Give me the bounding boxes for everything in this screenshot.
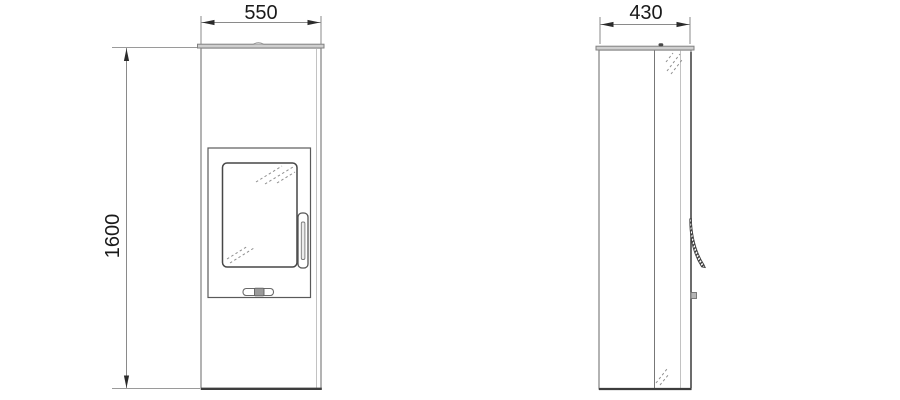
- front-width-dimension: 550: [201, 2, 321, 44]
- side-top-plate-knob: [659, 43, 664, 46]
- front-width-dimension-label: 550: [244, 2, 277, 24]
- top-plate-center-notch: [254, 43, 264, 44]
- dimension-arrow-down: [124, 376, 129, 389]
- front-height-dimension-label: 1600: [102, 214, 124, 259]
- air-control-knob: [255, 288, 265, 296]
- stove-top-plate: [198, 44, 325, 48]
- air-control-knob-side-profile: [691, 293, 697, 299]
- side-depth-dimension: 430: [600, 2, 690, 44]
- door-glass-window: [223, 163, 298, 267]
- side-depth-dimension-label: 430: [629, 2, 662, 24]
- stove-side-body-outline: [599, 50, 691, 389]
- front-view: 550 1600: [102, 2, 324, 389]
- dimension-arrow-up: [124, 49, 129, 62]
- dimension-arrow-right: [308, 20, 321, 25]
- dimension-arrow-left: [202, 20, 215, 25]
- dimension-arrow-left: [601, 22, 614, 27]
- front-height-dimension: 1600: [102, 48, 200, 389]
- stove-dimension-drawing: 550 1600: [0, 0, 900, 400]
- door-handle-slot: [301, 222, 305, 260]
- door-handle-side-profile: [690, 219, 705, 268]
- side-top-plate: [596, 46, 694, 50]
- technical-drawing-svg: 550 1600: [0, 0, 900, 400]
- dimension-arrow-right: [677, 22, 690, 27]
- side-view: 430: [596, 2, 705, 389]
